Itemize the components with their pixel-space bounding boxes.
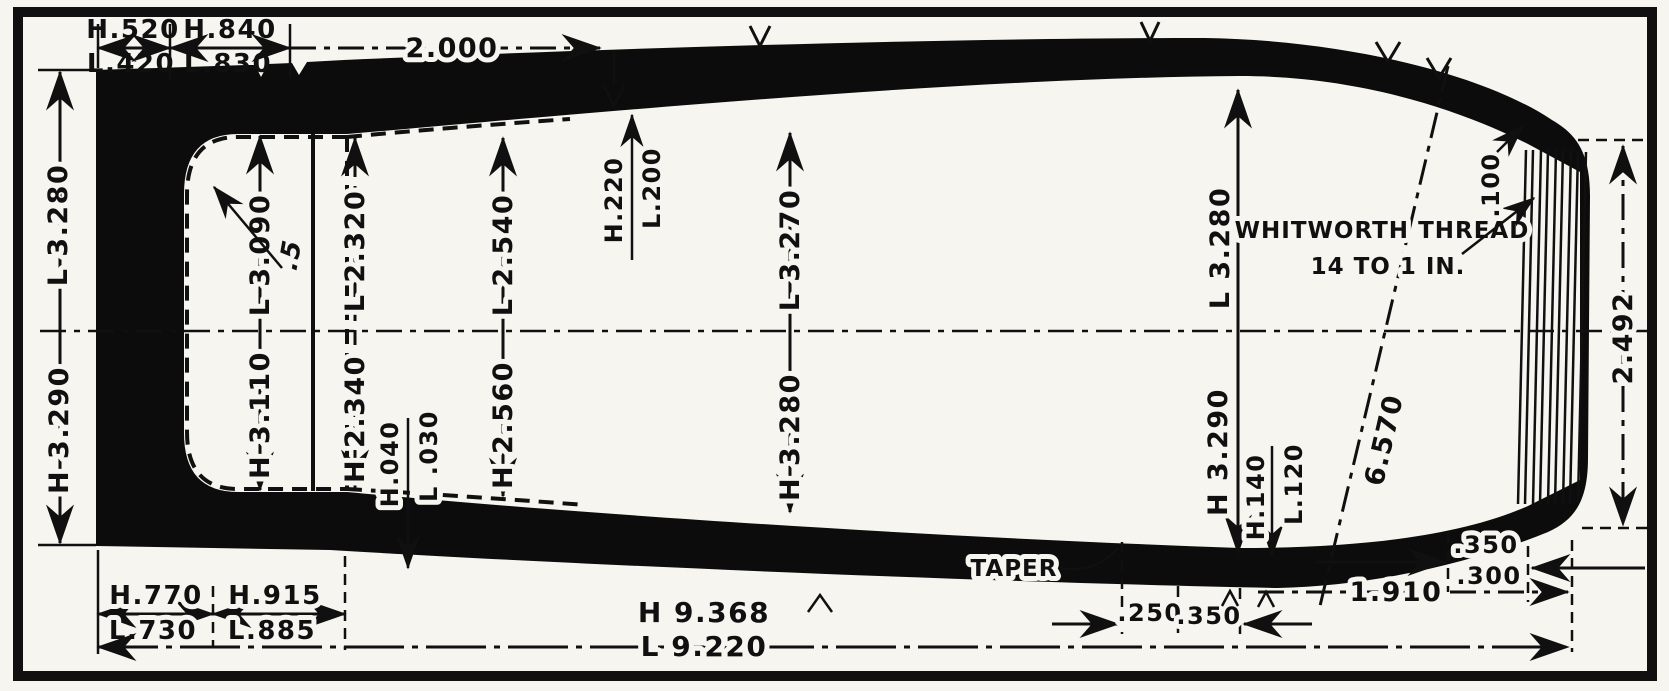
dim-step-h: H.040	[376, 421, 404, 508]
dim-overall-h: H 9.368	[638, 596, 770, 629]
dim-head-seg1-h: H.520	[86, 15, 179, 45]
dim-base-lower: H 3.110	[245, 351, 276, 479]
dim-overall-l: L 9.220	[641, 630, 768, 663]
dim-top-wall-l: L.200	[638, 147, 666, 229]
dim-station1-upper: L 2.320	[340, 190, 371, 313]
dim-mid-upper: L 3.270	[775, 189, 806, 312]
dim-station2-upper: L 2.540	[488, 194, 519, 317]
shell-case-section-drawing: H.520 L.420 H.840 L.830 2.000 L 3.280 H …	[0, 0, 1669, 691]
radius-label: .5	[274, 237, 309, 273]
dim-bottom-wall-l: L.120	[1280, 443, 1308, 525]
dim-base-seg2-h: H.915	[228, 581, 321, 611]
dim-head-seg2-h: H.840	[183, 15, 276, 45]
dim-bottom-wall-h: H.140	[1242, 454, 1270, 541]
witness-mark-v	[750, 26, 770, 46]
dim-left-lower: H 3.290	[44, 366, 75, 494]
dim-right-lower: H 3.290	[1203, 388, 1234, 516]
dim-head-seg1-l: L.420	[87, 49, 175, 79]
drawing-page: H.520 L.420 H.840 L.830 2.000 L 3.280 H …	[0, 0, 1669, 691]
dim-right-upper: L 3.280	[1205, 187, 1236, 310]
dim-mouth-span: 1.910	[1350, 577, 1443, 608]
dim-base-seg1-h: H.770	[109, 581, 202, 611]
witness-mark-caret	[808, 595, 832, 612]
thread-note-line1: WHITWORTH THREAD	[1235, 218, 1530, 244]
dim-head-seg2-l: L.830	[184, 49, 272, 79]
thread-note-line2: 14 TO 1 IN.	[1311, 254, 1466, 280]
dim-taper-a: .250	[1117, 599, 1182, 627]
dim-step-l: L .030	[415, 410, 443, 502]
dim-base-seg2-l: L.885	[228, 616, 316, 646]
dim-span-2000: 2.000	[406, 33, 499, 64]
dim-mouth-diameter: 2.492	[1608, 292, 1639, 385]
dim-mouth-top: .350	[1453, 531, 1518, 559]
dim-station1-lower: H 2.340	[340, 355, 371, 483]
taper-label: TAPER	[971, 556, 1058, 582]
dim-station2-lower: H 2.560	[488, 361, 519, 489]
dim-mouth-bottom: .300	[1456, 562, 1521, 590]
dim-top-wall-h: H.220	[600, 157, 628, 244]
dim-taper-b: .350	[1176, 602, 1241, 630]
witness-mark-caret	[1258, 592, 1274, 607]
dim-left-upper: L 3.280	[43, 164, 74, 287]
dim-base-seg1-l: L.730	[109, 616, 197, 646]
dim-thread-step: .100	[1477, 152, 1505, 217]
dims-left: L 3.280 H 3.290	[38, 70, 96, 545]
dim-mid-lower: H 3.280	[775, 373, 806, 501]
